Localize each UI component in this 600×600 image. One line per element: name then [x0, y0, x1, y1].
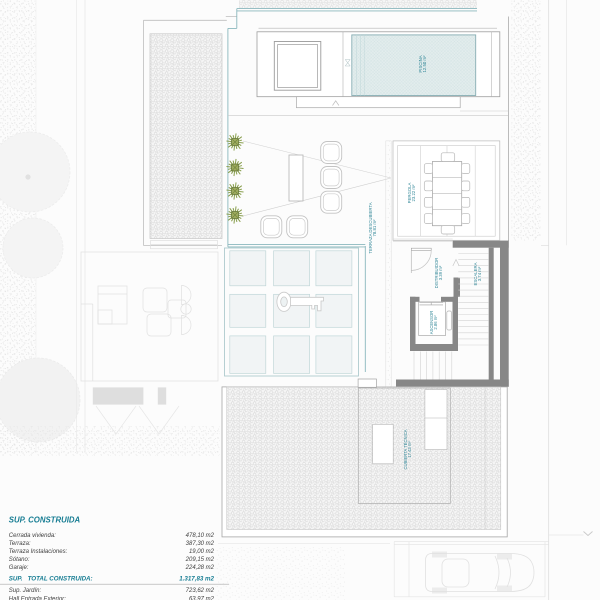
svg-text:Terraza:: Terraza:	[9, 541, 31, 547]
svg-text:SUP. CONSTRUIDA: SUP. CONSTRUIDA	[9, 516, 81, 525]
svg-text:723,62 m2: 723,62 m2	[186, 588, 215, 594]
svg-text:2.86 m²: 2.86 m²	[433, 315, 438, 330]
svg-text:78.81 m²: 78.81 m²	[372, 219, 377, 237]
svg-text:19,00 m2: 19,00 m2	[189, 549, 215, 555]
svg-text:209,15 m2: 209,15 m2	[185, 557, 215, 563]
svg-text:387,30 m2: 387,30 m2	[186, 541, 215, 547]
svg-text:Garaje:: Garaje:	[9, 565, 29, 571]
svg-text:Hall Entrada Exterior:: Hall Entrada Exterior:	[9, 597, 66, 600]
svg-text:Sup. Jardín:: Sup. Jardín:	[9, 588, 42, 594]
svg-text:17.43 m²: 17.43 m²	[407, 441, 412, 458]
svg-text:12.50 m²: 12.50 m²	[422, 55, 427, 73]
svg-text:63,97 m2: 63,97 m2	[189, 597, 215, 600]
svg-text:3.39 m²: 3.39 m²	[438, 265, 443, 280]
svg-text:1.317,83 m2: 1.317,83 m2	[179, 576, 214, 583]
svg-text:SUP. TOTAL CONSTRUIDA:: SUP. TOTAL CONSTRUIDA:	[9, 576, 93, 583]
svg-text:23.22 m²: 23.22 m²	[411, 184, 416, 202]
svg-text:Cerrada vivienda:: Cerrada vivienda:	[9, 533, 56, 539]
svg-text:224,28 m2: 224,28 m2	[185, 565, 215, 571]
svg-text:Terraza Instalaciones:: Terraza Instalaciones:	[9, 549, 68, 555]
svg-text:3.74 m²: 3.74 m²	[477, 266, 482, 281]
svg-text:Sótano:: Sótano:	[9, 557, 30, 563]
svg-text:478,10 m2: 478,10 m2	[186, 533, 215, 539]
